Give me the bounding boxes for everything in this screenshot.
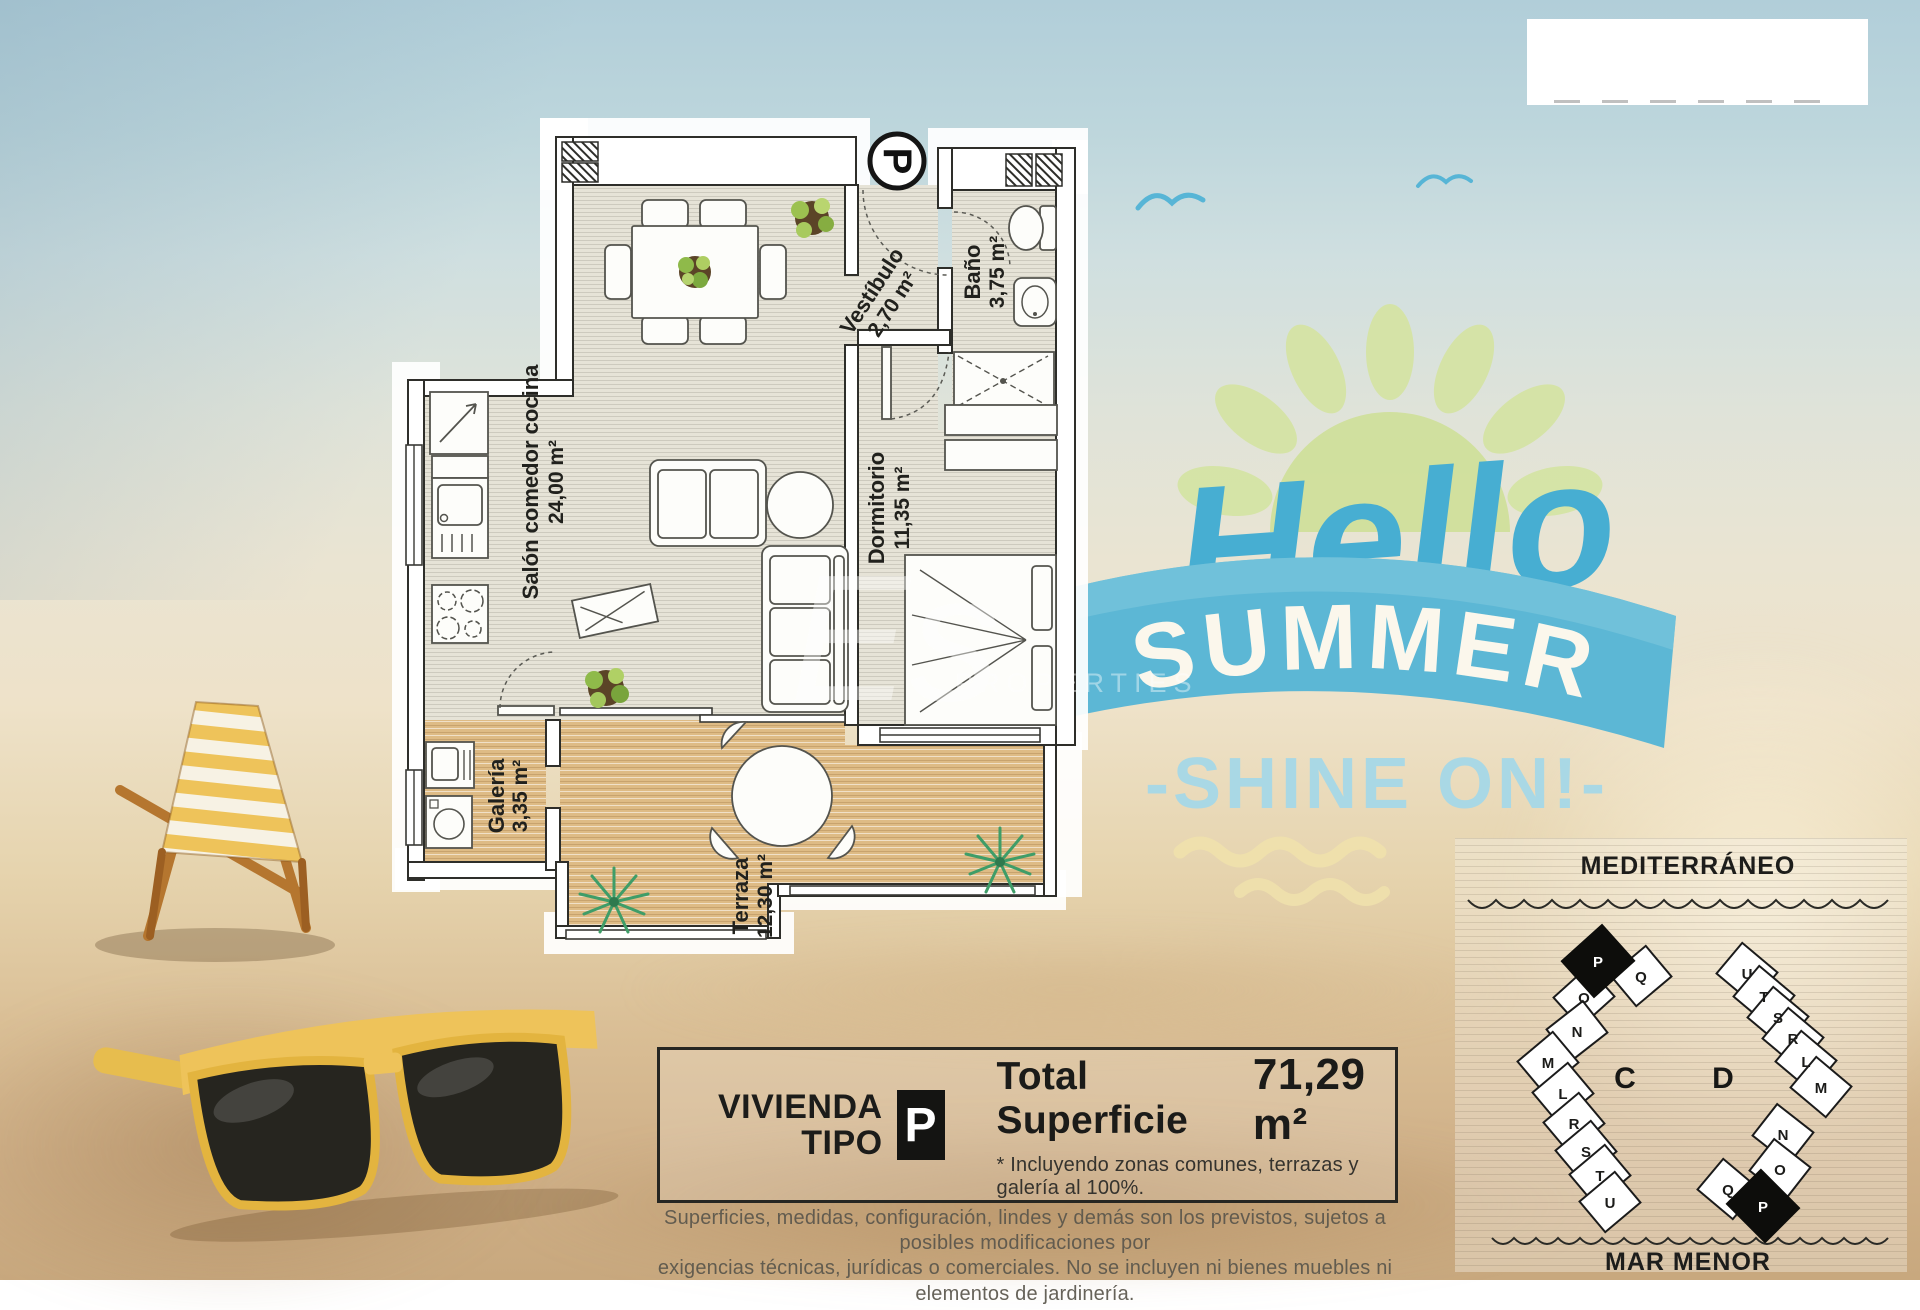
promo-tagline: -SHINE ON!-	[1145, 744, 1609, 824]
svg-text:Q: Q	[1635, 969, 1647, 986]
squiggle-icon	[1240, 884, 1384, 900]
svg-text:L: L	[1801, 1054, 1810, 1071]
room-label-terrace: Terraza 12,30 m²	[728, 854, 777, 938]
svg-text:N: N	[1778, 1127, 1789, 1144]
svg-text:L: L	[1558, 1086, 1567, 1103]
site-map: MEDITERRÁNEO P Q O N M L R	[1468, 851, 1888, 1276]
svg-text:P: P	[1758, 1199, 1768, 1216]
svg-text:3,35 m²: 3,35 m²	[509, 760, 532, 832]
svg-text:PROPERTIES: PROPERTIES	[955, 668, 1199, 698]
svg-text:Galería: Galería	[484, 758, 509, 833]
floor-plan: P Salón comedor cocina 24,00 m² Vestíbul…	[392, 118, 1199, 954]
svg-text:Salón comedor cocina: Salón comedor cocina	[518, 364, 543, 599]
svg-text:24,00 m²: 24,00 m²	[545, 440, 568, 524]
svg-text:Es: Es	[790, 538, 1000, 739]
svg-text:12,30 m²: 12,30 m²	[754, 854, 777, 938]
disclaimer-line-1: Superficies, medidas, configuración, lin…	[640, 1206, 1410, 1256]
kitchen-units	[430, 392, 488, 643]
dwelling-word: VIVIENDA	[718, 1089, 883, 1125]
seagull-icon	[1418, 176, 1471, 186]
logo-remnant-marks	[1554, 100, 1840, 103]
gallery-sink	[426, 742, 474, 788]
type-badge: P	[897, 1090, 945, 1160]
block-c-label: C	[1614, 1062, 1636, 1095]
svg-text:M: M	[1542, 1055, 1555, 1072]
kitchen-sink	[432, 478, 488, 558]
svg-text:U: U	[1605, 1195, 1616, 1212]
svg-text:Baño: Baño	[960, 245, 985, 300]
shower-tray	[954, 352, 1054, 412]
type-word: TIPO	[718, 1125, 883, 1161]
washbasin	[1014, 278, 1056, 326]
total-surface-label: Total Superficie	[997, 1055, 1229, 1143]
floor-plant	[585, 668, 629, 708]
svg-text:N: N	[1572, 1024, 1583, 1041]
total-surface-value: 71,29 m²	[1253, 1050, 1395, 1150]
block-d-label: D	[1712, 1062, 1734, 1095]
sea-label-top: MEDITERRÁNEO	[1581, 851, 1796, 880]
squiggle-icon	[1180, 843, 1380, 861]
room-label-bathroom: Baño 3,75 m²	[960, 236, 1009, 308]
top-right-logo-placeholder	[1527, 19, 1868, 105]
room-label-gallery: Galería 3,35 m²	[484, 758, 532, 833]
seagull-icon	[1138, 195, 1203, 208]
svg-text:R: R	[1569, 1116, 1580, 1133]
brochure-page: Hello SUMMER -SHINE ON!-	[0, 0, 1920, 1280]
svg-text:T: T	[1759, 989, 1768, 1006]
sunglasses	[89, 998, 620, 1258]
sea-label-bottom: MAR MENOR	[1605, 1248, 1771, 1276]
svg-text:M: M	[1815, 1080, 1828, 1097]
hello-summer-logo: Hello SUMMER -SHINE ON!-	[1053, 176, 1676, 900]
svg-text:S: S	[1581, 1144, 1591, 1161]
svg-text:T: T	[1595, 1168, 1604, 1185]
dwelling-type-label: VIVIENDA TIPO	[718, 1089, 883, 1161]
svg-text:O: O	[1578, 990, 1590, 1007]
disclaimer-line-2: exigencias técnicas, jurídicas o comerci…	[640, 1256, 1410, 1306]
svg-text:S: S	[1773, 1010, 1783, 1027]
toilet	[1009, 206, 1056, 250]
svg-text:P: P	[1593, 954, 1603, 971]
svg-text:R: R	[1788, 1031, 1799, 1048]
svg-text:Q: Q	[1722, 1182, 1734, 1199]
stove	[432, 585, 488, 643]
svg-text:U: U	[1742, 966, 1753, 983]
unit-type-marker: P	[870, 134, 924, 188]
svg-text:O: O	[1774, 1162, 1786, 1179]
svg-text:Terraza: Terraza	[728, 857, 753, 934]
total-surface-note: * Incluyendo zonas comunes, terrazas y g…	[997, 1154, 1396, 1200]
svg-text:3,75 m²: 3,75 m²	[986, 236, 1009, 308]
deck-chair	[95, 702, 335, 962]
svg-text:P: P	[875, 148, 919, 175]
wave-line-icon	[1492, 1238, 1888, 1244]
disclaimer: Superficies, medidas, configuración, lin…	[640, 1206, 1410, 1307]
washing-machine	[426, 796, 472, 848]
summary-box: VIVIENDA TIPO P Total Superficie 71,29 m…	[657, 1047, 1398, 1203]
total-surface: Total Superficie 71,29 m² * Incluyendo z…	[997, 1050, 1396, 1200]
building-block-c: P Q O N M L R S T U	[1518, 925, 1672, 1232]
wave-line-icon	[1468, 900, 1888, 908]
